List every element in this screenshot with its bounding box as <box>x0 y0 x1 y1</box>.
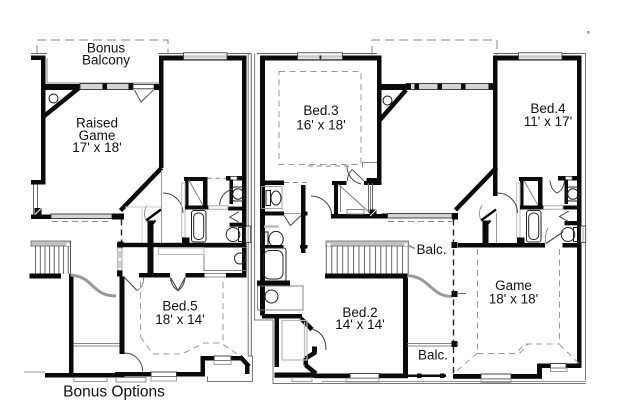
svg-text:14' x 14': 14' x 14' <box>335 317 384 332</box>
svg-text:Balc.: Balc. <box>418 348 448 363</box>
svg-text:18' x 18': 18' x 18' <box>489 292 538 307</box>
svg-text:11' x 17': 11' x 17' <box>524 114 572 129</box>
svg-text:Bonus Options: Bonus Options <box>63 384 165 401</box>
svg-text:Balc.: Balc. <box>416 242 446 257</box>
svg-text:Balcony: Balcony <box>82 53 130 68</box>
svg-text:Bed.3: Bed.3 <box>303 103 338 118</box>
svg-text:16' x 18': 16' x 18' <box>296 118 345 133</box>
svg-text:17' x 18': 17' x 18' <box>72 140 121 155</box>
svg-text:18' x 14': 18' x 14' <box>155 312 204 327</box>
